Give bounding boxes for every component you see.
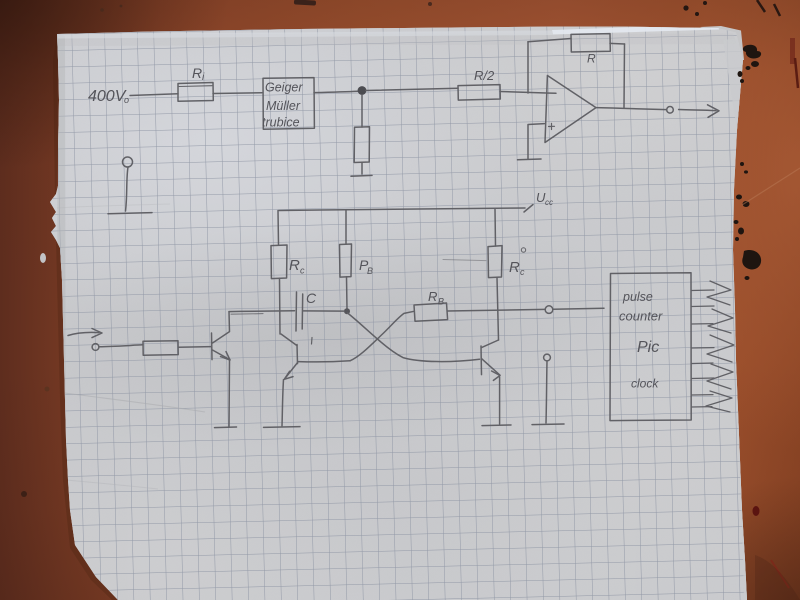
svg-text:trubice: trubice: [262, 116, 300, 130]
svg-text:Pic: Pic: [637, 339, 659, 356]
svg-text:R: R: [509, 259, 520, 276]
svg-text:Geiger: Geiger: [265, 81, 303, 95]
svg-text:R: R: [587, 52, 596, 66]
svg-text:B: B: [438, 297, 444, 307]
svg-text:pulse: pulse: [622, 290, 653, 304]
svg-text:c: c: [300, 266, 305, 276]
svg-text:o: o: [124, 95, 129, 105]
svg-text:counter: counter: [619, 309, 663, 324]
svg-text:B: B: [367, 266, 373, 276]
svg-text:C: C: [306, 290, 317, 306]
svg-text:Müller: Müller: [266, 99, 301, 113]
svg-text:R: R: [192, 65, 202, 81]
svg-text:R: R: [428, 289, 437, 304]
svg-text:c: c: [520, 267, 525, 277]
svg-text:R: R: [289, 257, 300, 274]
svg-text:clock: clock: [631, 377, 659, 391]
svg-text:cc: cc: [545, 198, 553, 207]
svg-text:R/2: R/2: [474, 68, 495, 83]
svg-text:400V: 400V: [88, 88, 127, 105]
